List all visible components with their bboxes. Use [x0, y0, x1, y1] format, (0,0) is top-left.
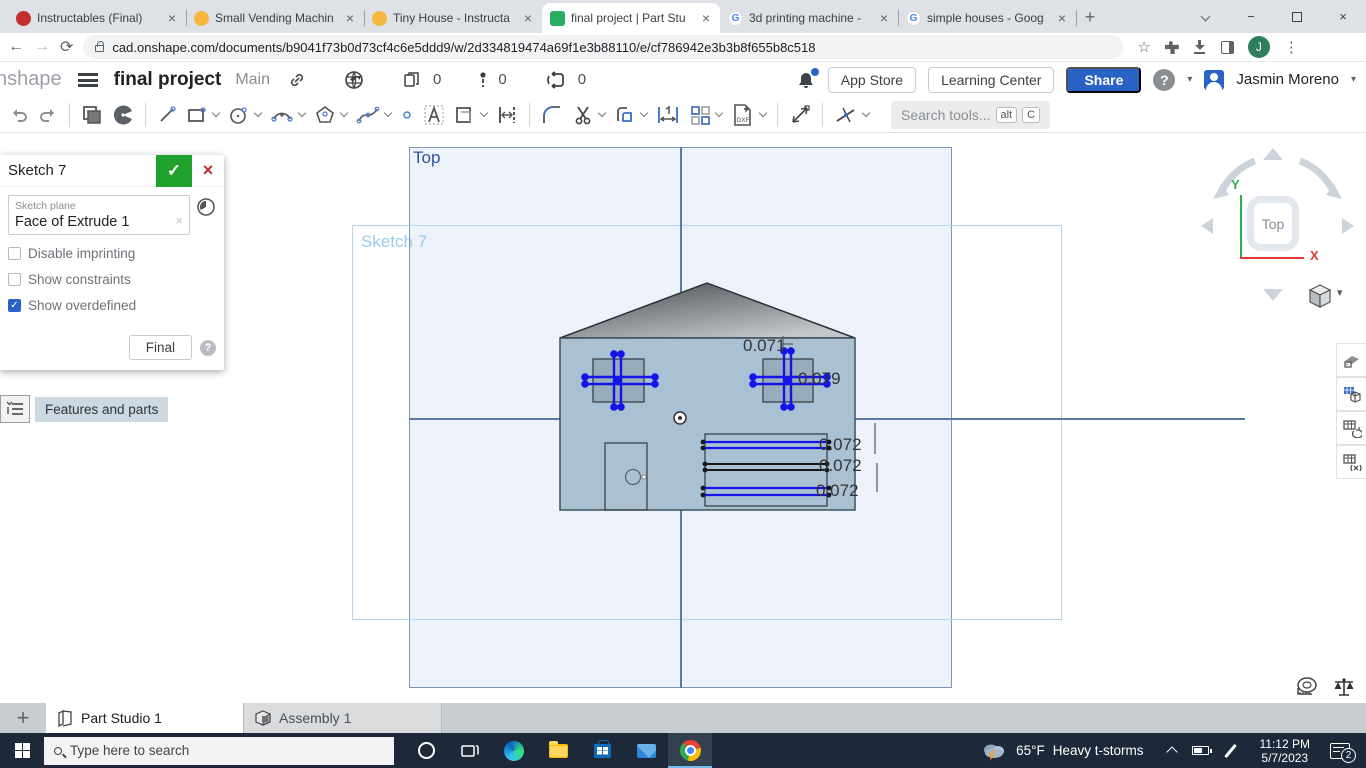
dxf-label: DXF — [737, 117, 750, 124]
taskbar-search-box[interactable]: Type here to search — [44, 737, 394, 765]
copies-icon[interactable] — [402, 70, 422, 90]
constraint-tool-icon[interactable] — [833, 103, 870, 127]
file-explorer-icon — [549, 744, 568, 758]
appearance-panel-icon[interactable] — [1336, 343, 1366, 377]
variables-panel-icon[interactable] — [1336, 445, 1366, 479]
file-explorer-button[interactable] — [536, 733, 580, 768]
viewcube-top-face[interactable]: Top — [1247, 196, 1299, 251]
user-avatar[interactable] — [1204, 70, 1224, 90]
sketch-toolbar: DXF Search tools... alt C — [0, 97, 1366, 133]
tab-part-studio-1[interactable]: Part Studio 1 — [46, 703, 244, 733]
revolve-icon[interactable] — [111, 103, 135, 127]
notification-badge: 2 — [1341, 748, 1356, 763]
side-panel-icon[interactable] — [1221, 41, 1234, 54]
use-project-icon[interactable] — [453, 104, 488, 126]
help-icon[interactable]: ? — [1153, 69, 1175, 91]
sketch-plane-value: Face of Extrude 1 — [15, 214, 183, 230]
pattern-tool-icon[interactable] — [688, 103, 723, 127]
isometric-view-icon[interactable] — [1307, 283, 1333, 309]
bookmark-star-icon[interactable]: ☆ — [1137, 38, 1150, 56]
browser-address-bar: ← → ⟳ cad.onshape.com/documents/b9041f73… — [0, 33, 1366, 62]
new-tab-button[interactable]: + — [1076, 3, 1104, 31]
downloads-icon[interactable] — [1193, 40, 1207, 54]
tab-title: Instructables (Final) — [37, 11, 160, 25]
browser-tab-bar: Instructables (Final) × Small Vending Ma… — [0, 0, 1366, 33]
features-and-parts-tooltip[interactable]: Features and parts — [35, 397, 168, 422]
checkbox-icon[interactable] — [8, 247, 21, 260]
windows-logo-icon — [15, 743, 30, 758]
hamburger-menu-icon[interactable] — [78, 73, 98, 87]
checkbox-show-overdefined[interactable]: ✓ Show overdefined — [8, 298, 216, 313]
shortcut-alt-key: alt — [996, 107, 1018, 123]
checkbox-label: Show constraints — [28, 272, 131, 287]
arc-tool-icon[interactable] — [269, 103, 306, 127]
dimension-label[interactable]: 0.079 — [798, 369, 841, 389]
mail-button[interactable] — [624, 733, 668, 768]
browser-tab-vending[interactable]: Small Vending Machin × — [186, 3, 364, 33]
browser-profile-avatar[interactable]: J — [1248, 36, 1270, 58]
tab-close-icon[interactable]: × — [522, 10, 534, 26]
checkbox-label: Disable imprinting — [28, 246, 135, 261]
text-tool-icon[interactable] — [422, 103, 446, 127]
tab-assembly-1[interactable]: Assembly 1 — [244, 703, 442, 733]
screen: Instructables (Final) × Small Vending Ma… — [0, 0, 1366, 768]
minimize-button[interactable]: − — [1228, 0, 1274, 33]
task-view-button[interactable] — [448, 733, 492, 768]
browser-menu-icon[interactable]: ⋮ — [1284, 38, 1299, 56]
weather-desc: Heavy t-storms — [1053, 743, 1144, 758]
measure-icon[interactable] — [788, 103, 812, 127]
reload-icon[interactable]: ⟳ — [60, 37, 73, 57]
browser-tab-simple-houses[interactable]: G simple houses - Goog × — [898, 3, 1076, 33]
help-caret-icon[interactable]: ▾ — [1187, 74, 1192, 85]
chrome-button[interactable] — [668, 733, 712, 768]
circle-tool-icon[interactable] — [227, 103, 262, 127]
sketch-origin-dot — [678, 416, 682, 420]
measure-tape-icon[interactable] — [1294, 676, 1320, 703]
back-icon[interactable]: ← — [8, 38, 24, 56]
user-name: Jasmin Moreno — [1236, 71, 1339, 88]
weather-temp: 65°F — [1016, 743, 1045, 758]
window-controls: − × — [1182, 0, 1366, 33]
configurations-panel-icon[interactable] — [1336, 377, 1366, 411]
sketch-plane-field[interactable]: Sketch plane Face of Extrude 1 × — [8, 195, 190, 235]
forward-icon[interactable]: → — [34, 38, 50, 56]
insert-new-tab-button[interactable]: + — [0, 703, 46, 733]
part-studio-icon — [56, 709, 74, 727]
sketch-dialog-header: Sketch 7 ✓ × — [0, 155, 224, 187]
document-title[interactable]: final project — [114, 69, 222, 91]
checkbox-label: Show overdefined — [28, 298, 136, 313]
onshape-favicon — [550, 11, 565, 26]
checkbox-show-constraints[interactable]: Show constraints — [8, 272, 216, 287]
final-button[interactable]: Final — [129, 335, 192, 360]
dimension-label[interactable]: 0.072 — [819, 435, 862, 455]
rectangle-tool-icon[interactable] — [185, 104, 220, 126]
learning-center-button[interactable]: Learning Center — [928, 67, 1054, 93]
instructables-favicon — [194, 11, 209, 26]
dimension-label[interactable]: 0.071 — [743, 336, 786, 356]
alerts-count: 0 — [498, 71, 506, 88]
start-button[interactable] — [0, 733, 44, 768]
taskbar-date: 5/7/2023 — [1260, 751, 1310, 765]
trim-tool-icon[interactable] — [571, 103, 606, 127]
cortana-button[interactable] — [404, 733, 448, 768]
tab-title: 3d printing machine - — [749, 11, 872, 25]
forks-count: 0 — [578, 71, 586, 88]
tab-close-icon[interactable]: × — [166, 10, 178, 26]
google-favicon: G — [728, 11, 743, 26]
y-axis-line — [1240, 195, 1242, 259]
bell-badge — [811, 68, 819, 76]
notifications-bell-icon[interactable] — [796, 70, 816, 90]
polygon-tool-icon[interactable] — [313, 103, 348, 127]
doc-tab-label: Part Studio 1 — [81, 710, 162, 726]
taskbar-search-placeholder: Type here to search — [70, 743, 189, 758]
onshape-header: nshape final project Main 0 0 0 — [0, 62, 1366, 97]
tray-expand-icon[interactable] — [1166, 746, 1177, 757]
taskbar-time: 11:12 PM — [1260, 737, 1310, 751]
address-bar-actions: ☆ J ⋮ — [1137, 36, 1298, 58]
sketch-boundary-label: Sketch 7 — [361, 232, 427, 252]
microsoft-store-button[interactable] — [580, 733, 624, 768]
undo-icon[interactable] — [8, 104, 30, 126]
cortana-icon — [418, 742, 435, 759]
pen-icon[interactable] — [1224, 743, 1237, 757]
tab-close-icon[interactable]: × — [344, 10, 356, 26]
checkbox-checked-icon[interactable]: ✓ — [8, 299, 21, 312]
close-window-button[interactable]: × — [1320, 0, 1366, 33]
doc-tab-label: Assembly 1 — [279, 710, 351, 726]
roof-shape — [560, 283, 855, 338]
browser-tab-onshape-active[interactable]: final project | Part Stu × — [542, 3, 720, 33]
door-knob-point — [642, 475, 646, 479]
right-panel — [1336, 343, 1366, 479]
top-plane-label: Top — [413, 148, 440, 168]
lock-icon — [95, 45, 104, 52]
dimension-label[interactable]: 0.072 — [819, 456, 862, 476]
notification-center-icon[interactable]: 2 — [1330, 743, 1350, 759]
tab-search-icon[interactable] — [1182, 0, 1228, 33]
workspace-name[interactable]: Main — [235, 71, 270, 89]
maximize-button[interactable] — [1274, 0, 1320, 33]
chrome-icon — [680, 740, 701, 761]
windows-taskbar: Type here to search 65°F Heavy t-storms — [0, 733, 1366, 768]
graphics-canvas[interactable]: Top Sketch 7 — [0, 133, 1366, 703]
construction-line-icon[interactable] — [495, 104, 519, 126]
app-store-button[interactable]: App Store — [828, 67, 916, 93]
checkbox-disable-imprinting[interactable]: Disable imprinting — [8, 246, 216, 261]
url-field[interactable]: cad.onshape.com/documents/b9041f73b0d73c… — [83, 35, 1123, 59]
fillet-tool-icon[interactable] — [540, 104, 564, 126]
checkbox-icon[interactable] — [8, 273, 21, 286]
point-tool-icon[interactable] — [399, 107, 415, 123]
mass-properties-icon[interactable] — [1332, 676, 1356, 703]
tab-close-icon[interactable]: × — [878, 10, 890, 26]
search-icon — [54, 747, 62, 755]
y-axis-label: Y — [1231, 177, 1240, 192]
browser-tab-instructables[interactable]: Instructables (Final) × — [8, 3, 186, 33]
fork-icon[interactable] — [545, 70, 567, 90]
dimension-label[interactable]: 0.072 — [816, 481, 859, 501]
accept-sketch-button[interactable]: ✓ — [156, 155, 192, 187]
dimension-tool-icon[interactable] — [655, 103, 681, 127]
share-button[interactable]: Share — [1066, 67, 1141, 93]
view-menu-caret-icon[interactable]: ▾ — [1337, 286, 1343, 299]
taskbar-clock[interactable]: 11:12 PM 5/7/2023 — [1252, 737, 1318, 765]
tab-title: simple houses - Goog — [927, 11, 1050, 25]
copies-count: 0 — [433, 71, 441, 88]
x-axis-label: X — [1310, 248, 1319, 263]
line-tool-icon[interactable] — [156, 104, 178, 126]
weather-widget[interactable]: 65°F Heavy t-storms — [970, 740, 1153, 762]
tab-close-icon[interactable]: × — [700, 10, 712, 26]
google-favicon: G — [906, 11, 921, 26]
spline-tool-icon[interactable] — [355, 103, 392, 127]
extensions-icon[interactable] — [1165, 40, 1179, 54]
edge-icon — [504, 741, 524, 761]
store-icon — [594, 744, 611, 758]
battery-icon[interactable] — [1192, 746, 1209, 755]
search-tools-placeholder: Search tools... — [901, 107, 991, 123]
browser-tab-tiny-house[interactable]: Tiny House - Instructa × — [364, 3, 542, 33]
url-text: cad.onshape.com/documents/b9041f73b0d73c… — [112, 40, 815, 55]
tab-title: Tiny House - Instructa — [393, 11, 516, 25]
instructables-favicon — [372, 11, 387, 26]
shortcut-c-key: C — [1022, 107, 1040, 123]
import-dxf-icon[interactable]: DXF — [730, 102, 767, 128]
offset-tool-icon[interactable] — [613, 103, 648, 127]
history-clock-icon[interactable] — [196, 197, 216, 222]
onshape-logo: nshape — [0, 68, 62, 91]
sketch-dialog-title: Sketch 7 — [0, 162, 156, 179]
user-menu-caret-icon[interactable]: ▾ — [1351, 74, 1356, 85]
dialog-help-icon[interactable]: ? — [200, 340, 216, 356]
redo-icon[interactable] — [37, 104, 59, 126]
mail-icon — [637, 744, 656, 758]
custom-tables-panel-icon[interactable] — [1336, 411, 1366, 445]
clear-plane-icon[interactable]: × — [175, 213, 183, 228]
cancel-sketch-button[interactable]: × — [192, 155, 224, 187]
alert-pin-icon[interactable] — [479, 70, 487, 90]
solid-boolean-icon[interactable] — [80, 103, 104, 127]
instructables-favicon — [16, 11, 31, 26]
x-axis-line — [1240, 257, 1304, 259]
document-tab-bar: + Part Studio 1 Assembly 1 — [0, 703, 1366, 733]
assembly-icon — [254, 709, 272, 727]
sketch-dialog: Sketch 7 ✓ × Sketch plane Face of Extrud… — [0, 155, 224, 370]
edge-button[interactable] — [492, 733, 536, 768]
task-view-icon — [461, 743, 479, 759]
storm-cloud-icon — [980, 740, 1008, 762]
public-globe-icon[interactable] — [344, 70, 364, 90]
tab-title: final project | Part Stu — [571, 11, 694, 25]
search-tools-box[interactable]: Search tools... alt C — [891, 101, 1050, 129]
browser-tab-3d-printing[interactable]: G 3d printing machine - × — [720, 3, 898, 33]
link-icon[interactable] — [288, 71, 306, 89]
taskbar-tray: 65°F Heavy t-storms 11:12 PM 5/7/2023 2 — [970, 737, 1366, 765]
sketch-plane-label: Sketch plane — [15, 200, 183, 212]
feature-tree-toggle[interactable] — [0, 395, 30, 423]
tab-close-icon[interactable]: × — [1056, 10, 1068, 26]
tab-title: Small Vending Machin — [215, 11, 338, 25]
